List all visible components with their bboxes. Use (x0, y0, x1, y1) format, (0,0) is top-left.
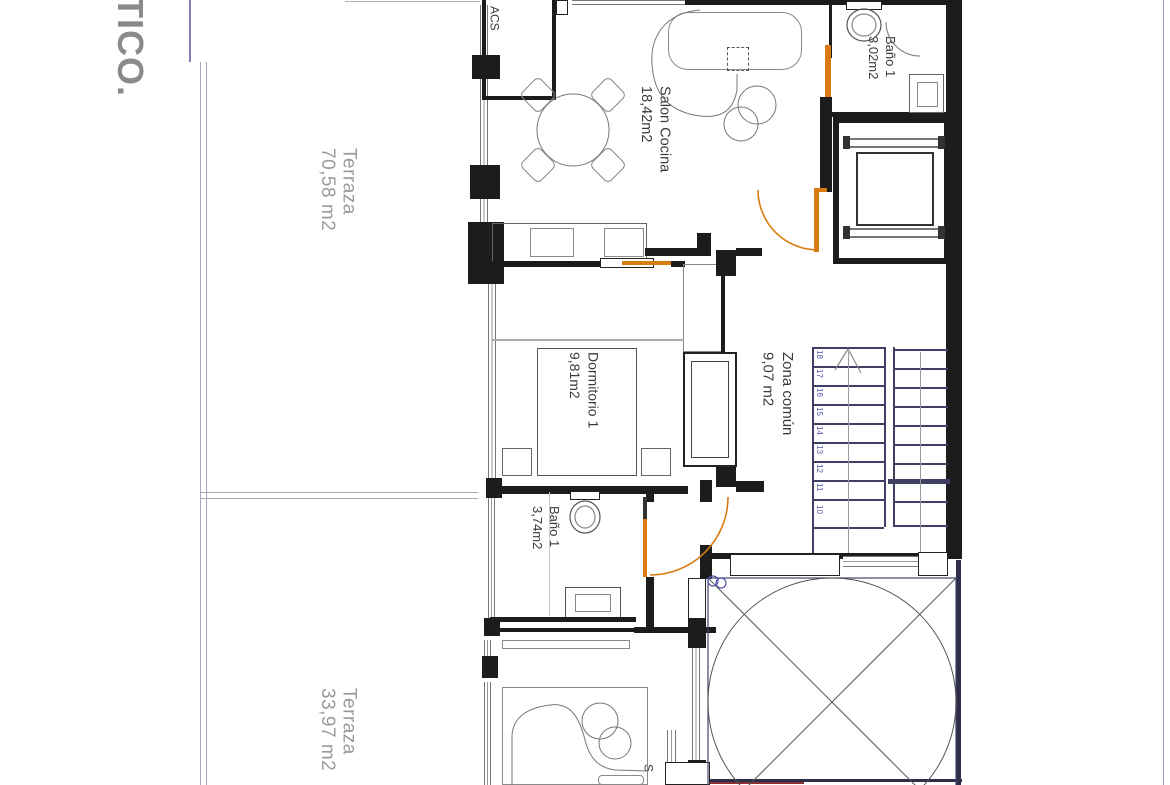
stair-direction-arrow (835, 349, 861, 373)
kitchen-counter-curve-lower (512, 705, 648, 785)
bath2-door-arc (650, 497, 728, 575)
chair (520, 77, 557, 114)
chair (590, 147, 627, 184)
patio-diagonal (708, 578, 956, 785)
patio-diagonal (708, 578, 956, 785)
kitchen-counter-curve (652, 10, 737, 116)
shower-arc (886, 22, 920, 56)
patio-circle (708, 578, 956, 785)
chair (520, 147, 557, 184)
dining-table (537, 94, 609, 166)
kitchen-sink-bowl-lower (582, 703, 618, 739)
floor-plan-canvas: TICO. Terraza 70,58 m2 Terraza 33,97 m2 … (0, 0, 1170, 785)
entry-door-arc (758, 190, 818, 250)
curves-layer (0, 0, 1170, 785)
toilet-bowl-inner (575, 506, 595, 528)
patio-outline (708, 578, 956, 785)
chair (590, 77, 627, 114)
toilet-bowl-inner (852, 14, 876, 36)
